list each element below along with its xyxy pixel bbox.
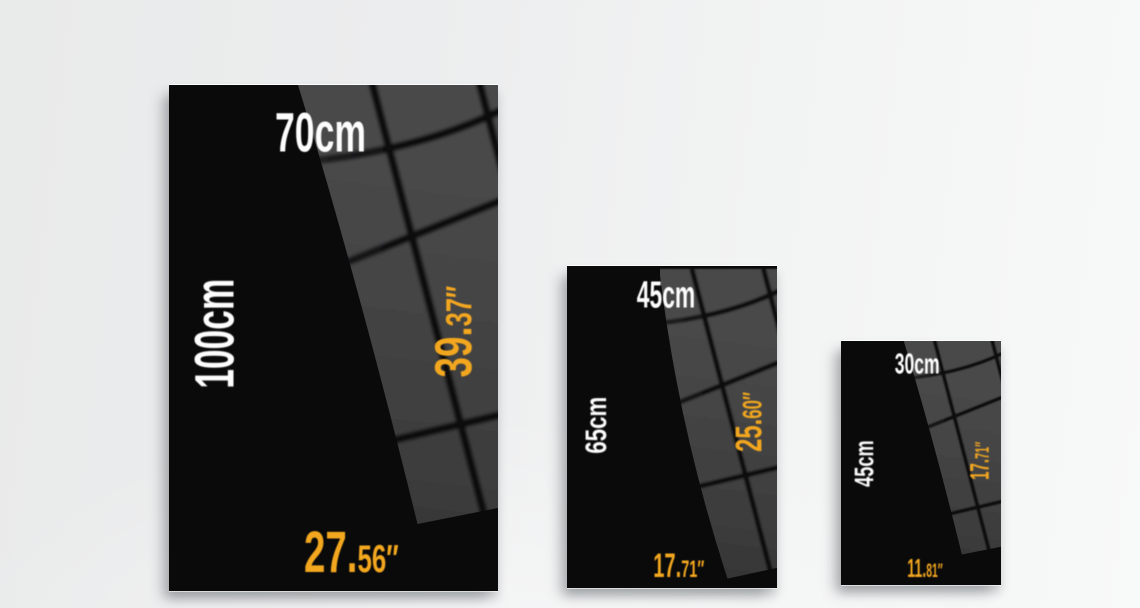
svg-text:65cm: 65cm <box>580 397 613 454</box>
svg-text:45cm: 45cm <box>849 440 879 487</box>
svg-text:45cm: 45cm <box>637 274 695 316</box>
svg-text:70cm: 70cm <box>275 101 366 163</box>
svg-text:100cm: 100cm <box>184 279 246 389</box>
svg-text:30cm: 30cm <box>895 349 940 381</box>
